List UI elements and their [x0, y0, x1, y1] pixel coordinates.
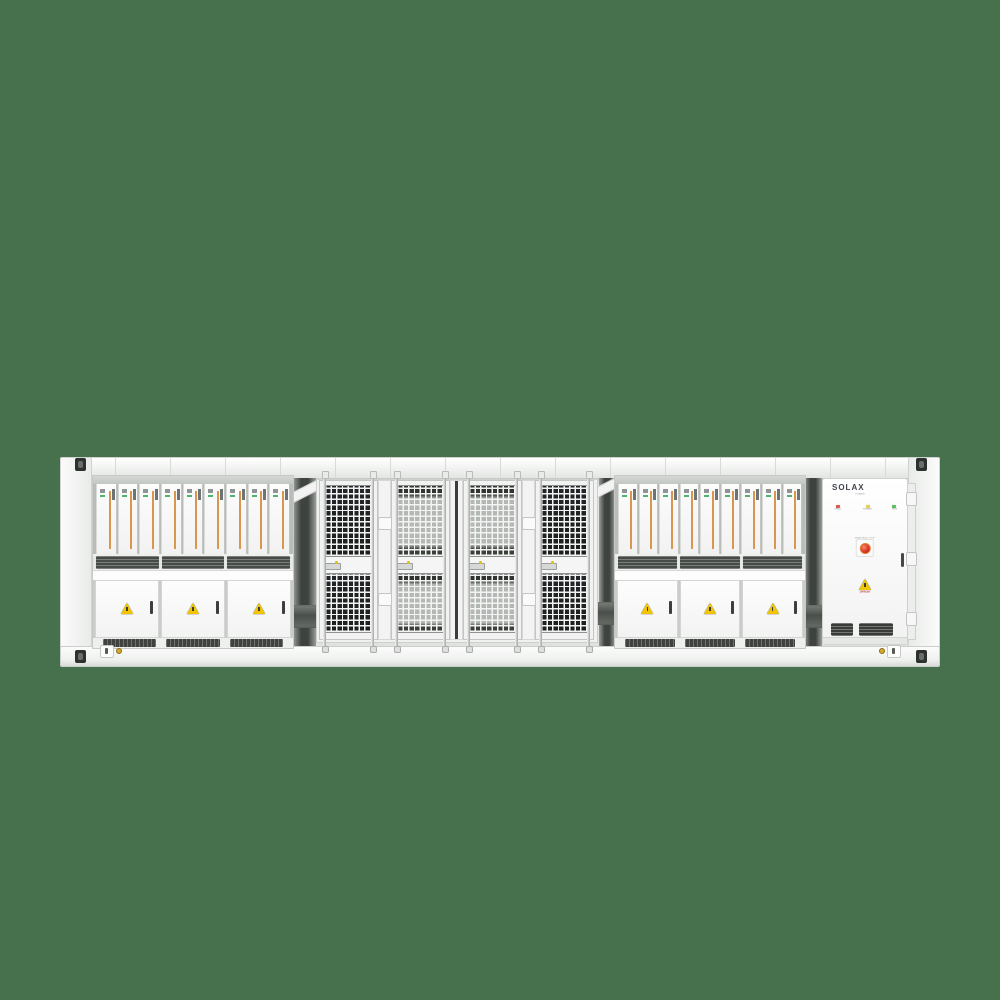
module-connector	[715, 489, 718, 500]
cabinet-base	[823, 637, 907, 644]
status-led-fault: FAULT	[829, 505, 847, 514]
door-mid-band	[324, 557, 373, 573]
module-connector	[633, 489, 636, 500]
warning-triangle-icon	[120, 603, 134, 615]
base-vent	[625, 639, 675, 647]
module-led	[684, 495, 689, 497]
door-mid-band	[396, 557, 445, 573]
status-led-row: FAULT POWER RUN	[823, 505, 907, 514]
brand-sub: POWER	[852, 493, 865, 495]
module-connector	[694, 489, 697, 500]
lock-rod	[395, 471, 398, 653]
cage-center-post	[450, 480, 463, 640]
module-stripe	[239, 491, 241, 549]
fan-grille	[743, 556, 802, 569]
module-led	[622, 495, 627, 497]
module-led	[143, 495, 148, 497]
module-stripe	[753, 491, 755, 549]
fan-tray	[615, 556, 805, 569]
door-mid-band	[540, 557, 589, 573]
module-label	[122, 489, 127, 493]
module-led	[766, 495, 771, 497]
module-led	[208, 495, 213, 497]
grounding-bolt-left	[116, 648, 122, 654]
module-label	[725, 489, 730, 493]
cabinet-hinge-rail	[907, 483, 916, 640]
mesh-door-1	[319, 480, 378, 640]
grounding-plate-right	[887, 645, 901, 658]
mesh-cage-section	[316, 475, 598, 647]
module-label	[100, 489, 105, 493]
battery-module	[721, 484, 741, 554]
led-power-label: POWER	[863, 508, 872, 510]
battery-module	[226, 484, 247, 554]
battery-module	[139, 484, 160, 554]
cabinet-vent	[831, 623, 853, 636]
module-connector	[220, 489, 223, 500]
battery-module	[783, 484, 803, 554]
module-led	[745, 495, 750, 497]
module-label	[143, 489, 148, 493]
grounding-plate-left	[100, 645, 114, 658]
cabinet-door	[742, 580, 803, 638]
module-connector	[756, 489, 759, 500]
base-vent	[685, 639, 735, 647]
battery-module	[639, 484, 659, 554]
pcs-rack-right: PCS Distribution Cabinet	[614, 475, 806, 649]
door-handle	[282, 601, 285, 614]
door-handle	[669, 601, 672, 614]
door-handle	[150, 601, 153, 614]
battery-module	[762, 484, 782, 554]
cabinet-door	[161, 580, 225, 638]
base-vent-row	[93, 639, 293, 647]
module-stripe	[130, 491, 132, 549]
container-bottom-rail	[60, 646, 940, 667]
cabinet-door	[95, 580, 159, 638]
base-vent	[230, 639, 283, 647]
fan-grille	[680, 556, 739, 569]
module-led	[100, 495, 105, 497]
module-stripe	[774, 491, 776, 549]
module-label	[208, 489, 213, 493]
scene-background: PCS Distribution Cabinet	[0, 0, 1000, 1000]
module-stripe	[712, 491, 714, 549]
rack-top-rail	[93, 476, 293, 484]
warning-triangle-icon	[252, 603, 266, 615]
module-stripe	[217, 491, 219, 549]
door-mid-band	[468, 557, 517, 573]
emergency-stop-label: EMERGENCY STOP	[855, 537, 875, 539]
rack-top-rail	[615, 476, 805, 484]
grounding-bolt-right	[879, 648, 885, 654]
fan-grille	[96, 556, 159, 569]
module-led	[230, 495, 235, 497]
module-stripe	[174, 491, 176, 549]
mesh-panel-lower	[324, 573, 373, 633]
lock-rod	[467, 471, 470, 653]
fan-grille	[227, 556, 290, 569]
module-led	[273, 495, 278, 497]
storage-container: PCS Distribution Cabinet	[60, 455, 940, 665]
cage-post	[378, 480, 391, 640]
cabinet-door-row	[615, 580, 805, 638]
base-vent	[745, 639, 795, 647]
warning-triangle-icon	[766, 603, 780, 615]
brand-logo: SOLAX POWER	[832, 484, 865, 499]
module-label	[787, 489, 792, 493]
led-run-label: RUN	[892, 508, 897, 510]
cabinet-door	[617, 580, 678, 638]
warning-triangle-icon	[640, 603, 654, 615]
module-label	[273, 489, 278, 493]
module-stripe	[282, 491, 284, 549]
battery-module-row	[615, 484, 805, 554]
fan-grille	[618, 556, 677, 569]
module-led	[252, 495, 257, 497]
battery-module	[118, 484, 139, 554]
module-stripe	[152, 491, 154, 549]
emergency-stop-button	[860, 543, 871, 554]
corner-casting-bottom-left	[75, 650, 86, 663]
emergency-stop-plate	[856, 539, 874, 557]
status-led-run: RUN	[888, 505, 901, 514]
door-handle	[216, 601, 219, 614]
lock-rod	[587, 471, 590, 653]
warning-label: DANGER	[857, 591, 873, 593]
module-stripe	[732, 491, 734, 549]
corner-casting-top-right	[916, 458, 927, 471]
hinge	[906, 492, 917, 506]
door-handle	[794, 601, 797, 614]
module-connector	[112, 489, 115, 500]
cabinet-door-row	[93, 580, 293, 638]
battery-module	[618, 484, 638, 554]
module-connector	[263, 489, 266, 500]
module-led	[187, 495, 192, 497]
module-stripe	[109, 491, 111, 549]
module-connector	[735, 489, 738, 500]
module-label	[252, 489, 257, 493]
corner-casting-bottom-right	[916, 650, 927, 663]
module-connector	[674, 489, 677, 500]
warning-triangle-icon	[703, 603, 717, 615]
battery-module	[659, 484, 679, 554]
cabinet-vent	[859, 623, 893, 636]
battery-module	[248, 484, 269, 554]
module-label	[745, 489, 750, 493]
lock-rod	[323, 471, 326, 653]
mesh-panel-upper	[396, 485, 445, 557]
fan-tray	[93, 556, 293, 569]
module-label	[663, 489, 668, 493]
module-stripe	[195, 491, 197, 549]
mesh-panel-lower	[468, 573, 517, 633]
battery-module	[161, 484, 182, 554]
battery-module	[700, 484, 720, 554]
module-label	[684, 489, 689, 493]
module-stripe	[260, 491, 262, 549]
battery-module-row	[93, 484, 293, 554]
module-led	[787, 495, 792, 497]
lock-rod	[539, 471, 542, 653]
cabinet-door-handle	[901, 553, 904, 567]
module-connector	[133, 489, 136, 500]
module-connector	[653, 489, 656, 500]
module-led	[165, 495, 170, 497]
module-connector	[155, 489, 158, 500]
mesh-panel-upper	[324, 485, 373, 557]
module-connector	[285, 489, 288, 500]
warning-triangle-icon	[858, 579, 872, 591]
module-label	[766, 489, 771, 493]
cabinet-door	[227, 580, 291, 638]
module-label	[704, 489, 709, 493]
battery-module	[183, 484, 204, 554]
base-vent	[166, 639, 219, 647]
emergency-stop: EMERGENCY STOP	[837, 533, 893, 557]
status-led-power: POWER	[856, 505, 879, 514]
module-connector	[797, 489, 800, 500]
module-label	[643, 489, 648, 493]
module-led	[725, 495, 730, 497]
module-led	[122, 495, 127, 497]
module-connector	[242, 489, 245, 500]
module-stripe	[794, 491, 796, 549]
module-label	[230, 489, 235, 493]
module-stripe	[691, 491, 693, 549]
module-stripe	[630, 491, 632, 549]
mesh-door-3	[463, 480, 522, 640]
module-label	[165, 489, 170, 493]
mesh-panel-lower	[396, 573, 445, 633]
module-led	[663, 495, 668, 497]
fan-grille	[162, 556, 225, 569]
module-label	[187, 489, 192, 493]
module-connector	[198, 489, 201, 500]
brand-name: SOLAX	[832, 484, 865, 492]
module-stripe	[671, 491, 673, 549]
module-connector	[177, 489, 180, 500]
pcs-rack-left: PCS Distribution Cabinet	[92, 475, 294, 649]
mesh-door-2	[391, 480, 450, 640]
mesh-door-4	[535, 480, 594, 640]
cabinet-door	[680, 580, 741, 638]
cage-post	[522, 480, 535, 640]
warning-triangle-icon	[186, 603, 200, 615]
lock-rod	[515, 471, 518, 653]
module-label	[622, 489, 627, 493]
battery-module	[680, 484, 700, 554]
base-vent-row	[615, 639, 805, 647]
mesh-panel-lower	[540, 573, 589, 633]
led-fault-label: FAULT	[835, 508, 842, 510]
module-connector	[777, 489, 780, 500]
corner-post-left	[60, 457, 92, 665]
hinge	[906, 552, 917, 566]
mesh-panel-upper	[540, 485, 589, 557]
hinge	[906, 612, 917, 626]
mesh-panel-upper	[468, 485, 517, 557]
door-handle	[731, 601, 734, 614]
battery-module	[204, 484, 225, 554]
battery-module	[741, 484, 761, 554]
battery-module	[269, 484, 290, 554]
module-stripe	[650, 491, 652, 549]
cabinet-warning: DANGER	[845, 579, 885, 597]
module-led	[643, 495, 648, 497]
module-led	[704, 495, 709, 497]
lock-rod	[371, 471, 374, 653]
lock-rod	[443, 471, 446, 653]
control-cabinet: SOLAX POWER FAULT POWER RUN EMERGENCY S	[822, 478, 908, 645]
corner-casting-top-left	[75, 458, 86, 471]
battery-module	[96, 484, 117, 554]
